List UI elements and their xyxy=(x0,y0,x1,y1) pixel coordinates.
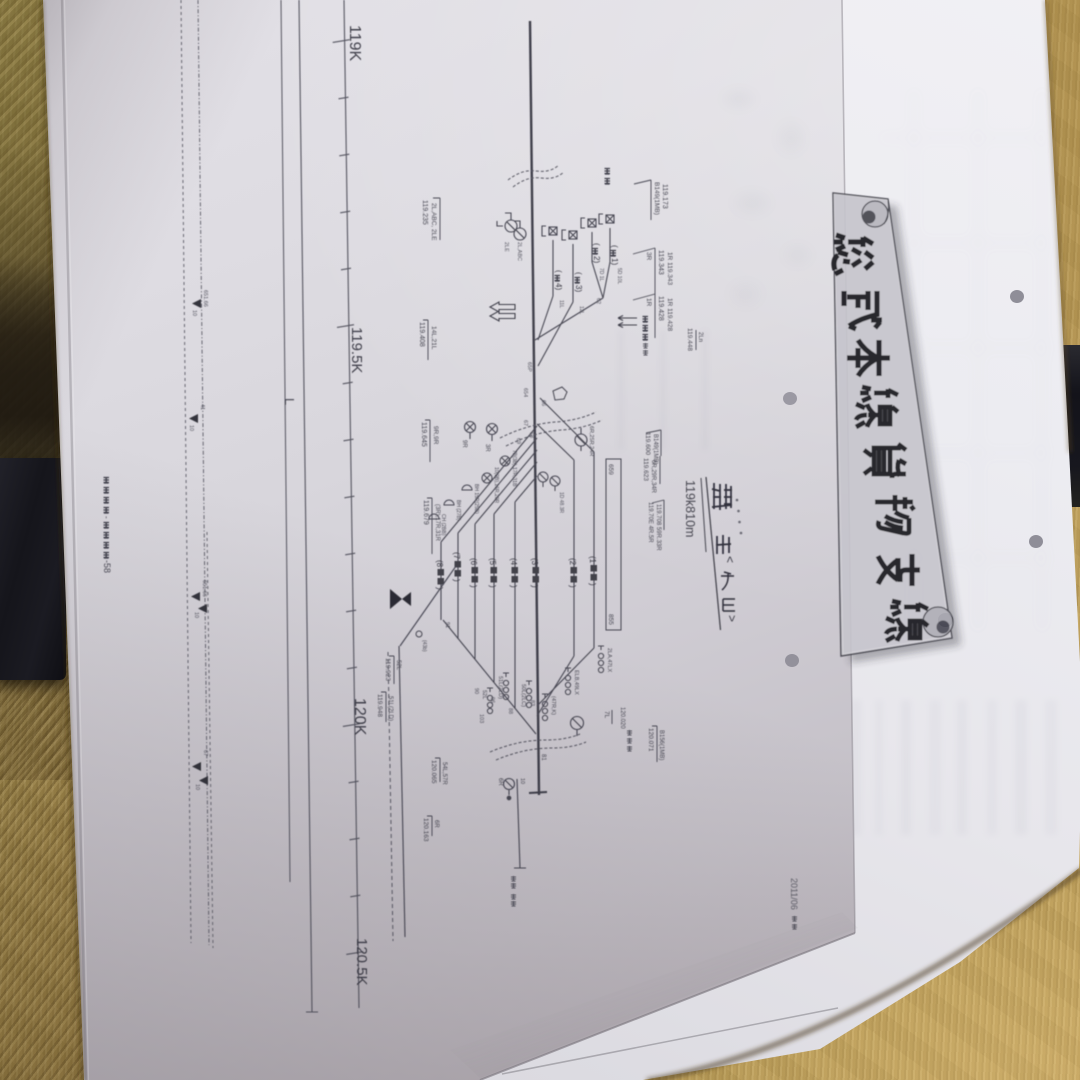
svg-text:9R,9R: 9R,9R xyxy=(432,426,439,445)
svg-text:119.923: 119.923 xyxy=(384,658,391,681)
svg-text:119.343: 119.343 xyxy=(657,250,664,275)
svg-text:65P: 65P xyxy=(526,362,532,372)
svg-text:12L: 12L xyxy=(578,306,584,315)
svg-text:(5: (5 xyxy=(488,558,497,566)
svg-text:67: 67 xyxy=(202,750,208,756)
svg-text:654: 654 xyxy=(522,388,528,397)
svg-text:7B(3B),17R,31B: 7B(3B),17R,31B xyxy=(511,450,517,487)
svg-text:119.235: 119.235 xyxy=(421,200,428,225)
svg-text:3): 3) xyxy=(574,285,583,292)
svg-text:81: 81 xyxy=(540,754,546,761)
svg-text:(3: (3 xyxy=(530,558,539,566)
svg-text:(: ( xyxy=(574,272,583,275)
svg-text:3R: 3R xyxy=(484,444,490,452)
svg-text:10: 10 xyxy=(193,612,199,618)
svg-text:1D 48.3R: 1D 48.3R xyxy=(558,492,564,514)
svg-text:2): 2) xyxy=(592,256,601,263)
svg-text:1R: 1R xyxy=(645,298,652,307)
svg-text:(: ( xyxy=(610,245,619,248)
svg-text:119K: 119K xyxy=(346,25,363,62)
svg-text:120.071: 120.071 xyxy=(647,728,654,752)
svg-text:51L(2LD): 51L(2LD) xyxy=(497,676,503,699)
svg-text:(2: (2 xyxy=(568,558,577,566)
svg-text:7D 1L: 7D 1L xyxy=(598,268,604,282)
svg-text:6R: 6R xyxy=(497,778,503,786)
svg-text:119.948: 119.948 xyxy=(376,694,383,717)
svg-text:67: 67 xyxy=(522,420,528,426)
svg-text:(: ( xyxy=(554,270,563,273)
svg-text:): ) xyxy=(509,585,518,588)
svg-text:119.408: 119.408 xyxy=(418,322,425,347)
svg-text:855: 855 xyxy=(607,614,614,625)
svg-text:): ) xyxy=(530,585,539,588)
svg-text:119.679: 119.679 xyxy=(422,500,429,525)
svg-text:51L(2LD): 51L(2LD) xyxy=(387,696,393,721)
svg-text:10: 10 xyxy=(194,784,200,790)
svg-text:(43b): (43b) xyxy=(421,640,427,652)
svg-text:119.70E 4R.5R: 119.70E 4R.5R xyxy=(647,502,653,543)
svg-text:41: 41 xyxy=(199,404,205,410)
svg-text:(4: (4 xyxy=(509,558,518,566)
svg-text:119.428: 119.428 xyxy=(657,296,664,321)
svg-text:88: 88 xyxy=(507,708,513,714)
svg-text:11L: 11L xyxy=(558,300,564,308)
svg-text:7L: 7L xyxy=(603,711,610,719)
svg-text:119.173: 119.173 xyxy=(661,184,668,209)
svg-text:2LA,47LX: 2LA,47LX xyxy=(606,648,612,672)
svg-text:10(9B),16R,20R: 10(9B),16R,20R xyxy=(493,467,499,504)
svg-text:B149(1MB): B149(1MB) xyxy=(653,182,660,215)
svg-text:(6: (6 xyxy=(469,558,478,566)
svg-text:90: 90 xyxy=(473,688,479,694)
svg-text:9R: 9R xyxy=(461,440,467,448)
svg-text:119.708 59R.33R: 119.708 59R.33R xyxy=(655,504,661,551)
svg-text:(7: (7 xyxy=(452,552,461,560)
svg-text:119.623: 119.623 xyxy=(642,458,649,481)
svg-text:(3R),17R,31R: (3R),17R,31R xyxy=(434,504,440,542)
svg-text:91: 91 xyxy=(444,622,450,628)
svg-text:5D 10L: 5D 10L xyxy=(616,268,622,284)
svg-text:119.600: 119.600 xyxy=(644,432,651,455)
svg-text:62: 62 xyxy=(595,298,601,304)
svg-text:): ) xyxy=(488,585,497,588)
svg-text:14L,21L: 14L,21L xyxy=(430,326,437,350)
svg-text:10: 10 xyxy=(188,425,194,431)
svg-text:69: 69 xyxy=(515,438,521,444)
svg-text:4): 4) xyxy=(554,283,563,290)
svg-text:120.5K: 120.5K xyxy=(353,938,370,986)
svg-text:(8: (8 xyxy=(435,560,444,568)
svg-text:2011/06: 2011/06 xyxy=(789,878,799,910)
svg-text:10: 10 xyxy=(519,778,525,784)
svg-text:): ) xyxy=(469,585,478,588)
svg-text:(: ( xyxy=(592,243,601,246)
svg-text:1R 119.343: 1R 119.343 xyxy=(666,252,673,286)
svg-text:-58: -58 xyxy=(102,560,112,573)
svg-text:83: 83 xyxy=(529,700,535,706)
svg-text:BH (27B): BH (27B) xyxy=(455,500,461,521)
svg-text:2LE: 2LE xyxy=(503,242,509,252)
svg-text:119k810m: 119k810m xyxy=(683,480,697,537)
svg-text:3R: 3R xyxy=(645,252,652,261)
svg-text:ELB,49LX: ELB,49LX xyxy=(573,670,579,695)
svg-text:L: L xyxy=(282,398,297,405)
svg-text:BH 15R(25B): BH 15R(25B) xyxy=(473,484,479,514)
svg-text:659: 659 xyxy=(607,464,614,475)
svg-text:119.448: 119.448 xyxy=(686,328,693,351)
svg-text:>: > xyxy=(725,615,739,622)
svg-text:): ) xyxy=(452,579,461,582)
svg-text:1R 119.428: 1R 119.428 xyxy=(666,298,673,332)
svg-text:120.020: 120.020 xyxy=(619,707,625,729)
svg-text:(47R,K): (47R,K) xyxy=(550,696,556,715)
svg-text:): ) xyxy=(568,585,577,588)
svg-text:120.163: 120.163 xyxy=(422,818,429,842)
svg-text:120K: 120K xyxy=(351,698,368,736)
svg-text:50L(2LC): 50L(2LC) xyxy=(520,684,526,707)
svg-text:<: < xyxy=(723,556,737,563)
svg-text:6R: 6R xyxy=(433,820,439,828)
svg-text:-: - xyxy=(102,516,111,519)
svg-text:B156(1MB): B156(1MB) xyxy=(658,730,664,760)
svg-text:2L,ABC, 2LE: 2L,ABC, 2LE xyxy=(430,203,437,241)
svg-text:2Ln: 2Ln xyxy=(697,332,703,342)
svg-text:651.66: 651.66 xyxy=(201,580,207,597)
svg-text:96: 96 xyxy=(489,697,495,703)
svg-text:651.66: 651.66 xyxy=(202,290,208,307)
svg-text:(1: (1 xyxy=(588,556,597,564)
svg-text:52L: 52L xyxy=(395,660,401,671)
svg-text:103: 103 xyxy=(478,714,484,723)
svg-text:120.065: 120.065 xyxy=(430,760,437,784)
svg-text:10: 10 xyxy=(191,310,197,316)
svg-text:119.645: 119.645 xyxy=(420,422,427,447)
svg-text:54L,57R: 54L,57R xyxy=(441,762,447,785)
svg-text:): ) xyxy=(588,583,597,586)
svg-text:52L: 52L xyxy=(481,690,487,699)
svg-text:2L,ABC: 2L,ABC xyxy=(516,242,522,261)
svg-text:119.5K: 119.5K xyxy=(348,327,365,373)
svg-text:1): 1) xyxy=(610,258,619,265)
svg-text:6R,29R,34R: 6R,29R,34R xyxy=(650,460,656,494)
